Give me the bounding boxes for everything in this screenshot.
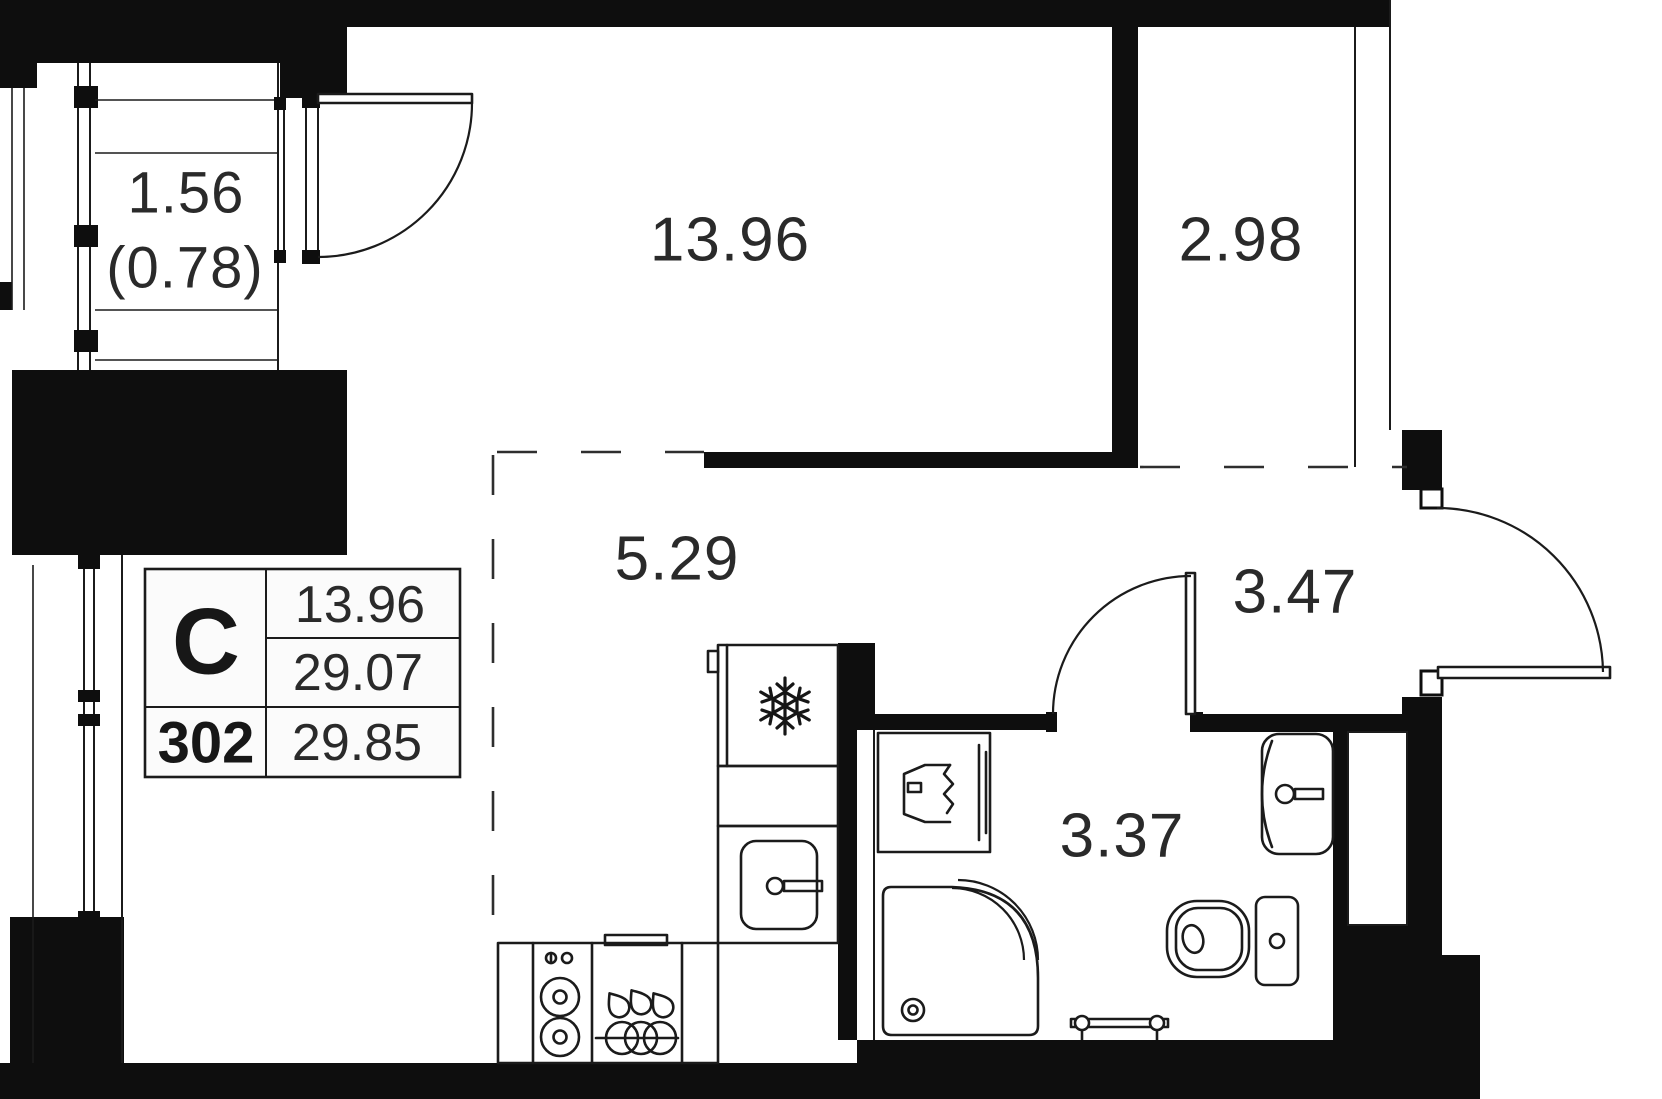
balcony-door-leaf (318, 94, 472, 103)
vent-shaft-niche (1348, 732, 1407, 925)
floor-plan-page: 13.96 2.98 5.29 3.47 3.37 1.56 (0.78) С … (0, 0, 1662, 1099)
shower-door-arc (958, 880, 1038, 960)
kitchen-sink (718, 826, 838, 943)
unit-info-card: С 13.96 29.07 302 29.85 (145, 569, 460, 777)
kitchen-cabinet (718, 766, 838, 826)
bathroom-sink (1262, 734, 1333, 854)
unit-total-area: 29.85 (292, 714, 422, 772)
niche-area-label: 2.98 (1179, 206, 1304, 275)
bathroom-door-swing-arc (1053, 576, 1191, 714)
balcony-door-swing-arc (318, 103, 472, 257)
shower-door-arc-inner (952, 888, 1024, 960)
unit-type-label: С (172, 589, 240, 694)
shower-drain-icon (902, 999, 924, 1021)
washing-machine-icon (904, 765, 953, 822)
washing-machine (878, 733, 990, 852)
right-wall-upper (1355, 0, 1390, 467)
toilet (1167, 897, 1298, 985)
balcony-area-label: 1.56 (128, 161, 245, 226)
kitchen-sink-drain-icon (767, 878, 783, 894)
kitchen-counter (498, 935, 718, 1063)
living-room-area-label: 13.96 (650, 206, 810, 275)
balcony-reduced-area-label: (0.78) (106, 236, 264, 301)
bathroom-faucet-icon (1276, 785, 1294, 803)
kitchen-area-label: 5.29 (615, 525, 740, 594)
entrance-door (1421, 489, 1610, 695)
bathroom-door (1046, 573, 1203, 732)
shower-cabin (883, 880, 1038, 1035)
unit-room-area: 13.96 (295, 576, 425, 634)
balcony-door (302, 94, 472, 264)
unit-living-area: 29.07 (293, 644, 423, 702)
dish-rack-icon (596, 935, 678, 1054)
unit-number: 302 (158, 711, 255, 776)
floor-plan-canvas: 13.96 2.98 5.29 3.47 3.37 1.56 (0.78) С … (0, 0, 1662, 1099)
snowflake-icon (757, 678, 813, 734)
entrance-door-swing-arc (1437, 508, 1603, 672)
entrance-door-leaf (1438, 667, 1610, 678)
stove-burners-icon (541, 953, 579, 1056)
hallway-area-label: 3.47 (1233, 558, 1358, 627)
bathroom-area-label: 3.37 (1060, 802, 1185, 871)
bathroom-door-leaf (1186, 573, 1195, 714)
fridge (708, 645, 838, 766)
